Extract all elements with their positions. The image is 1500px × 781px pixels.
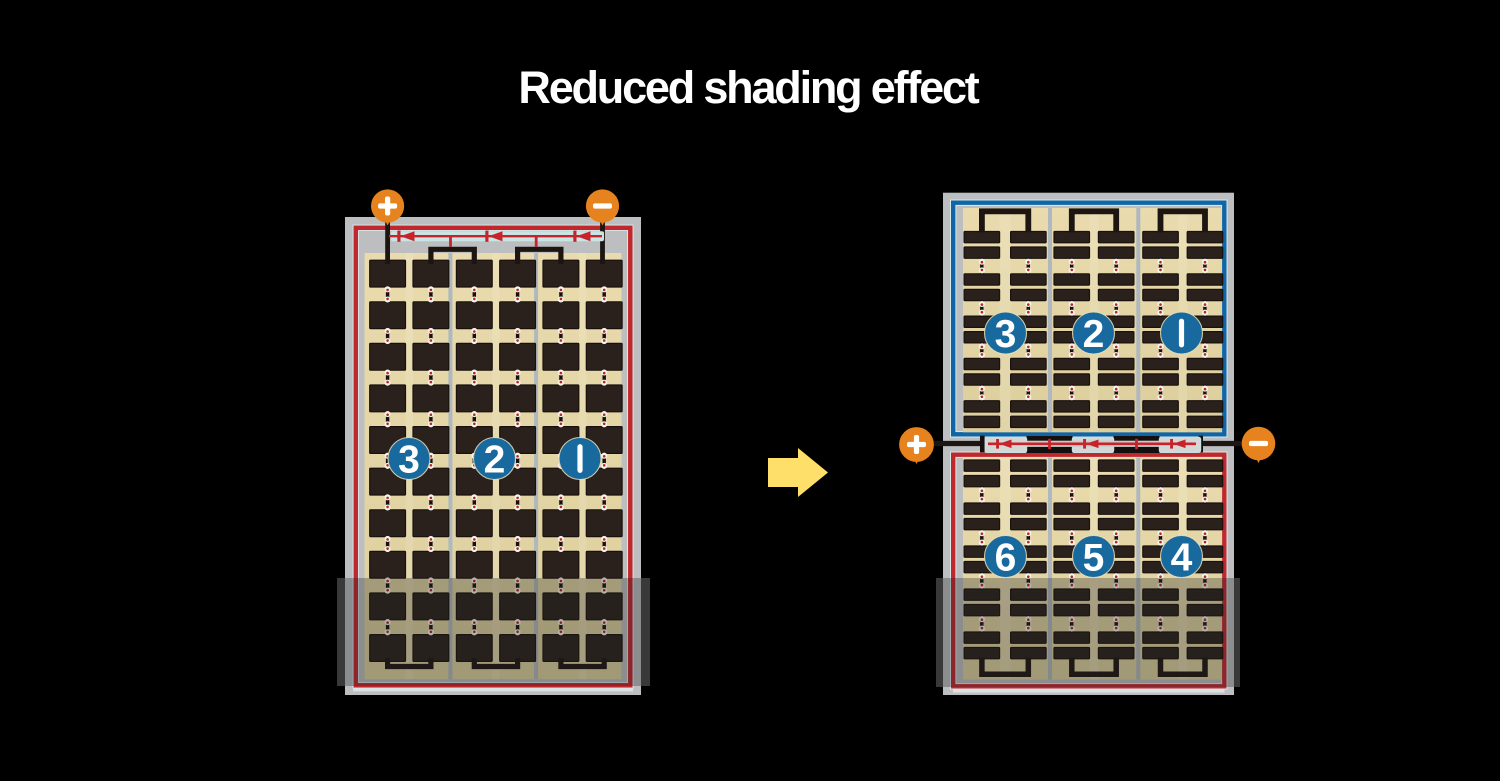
svg-text:2: 2 (1083, 313, 1105, 356)
svg-text:2: 2 (484, 439, 506, 482)
svg-text:Reduced shading effect: Reduced shading effect (518, 62, 979, 113)
svg-text:6: 6 (995, 537, 1017, 580)
svg-text:5: 5 (1083, 537, 1105, 580)
svg-text:4: 4 (1171, 537, 1193, 580)
svg-text:3: 3 (398, 439, 420, 482)
svg-text:3: 3 (995, 313, 1017, 356)
